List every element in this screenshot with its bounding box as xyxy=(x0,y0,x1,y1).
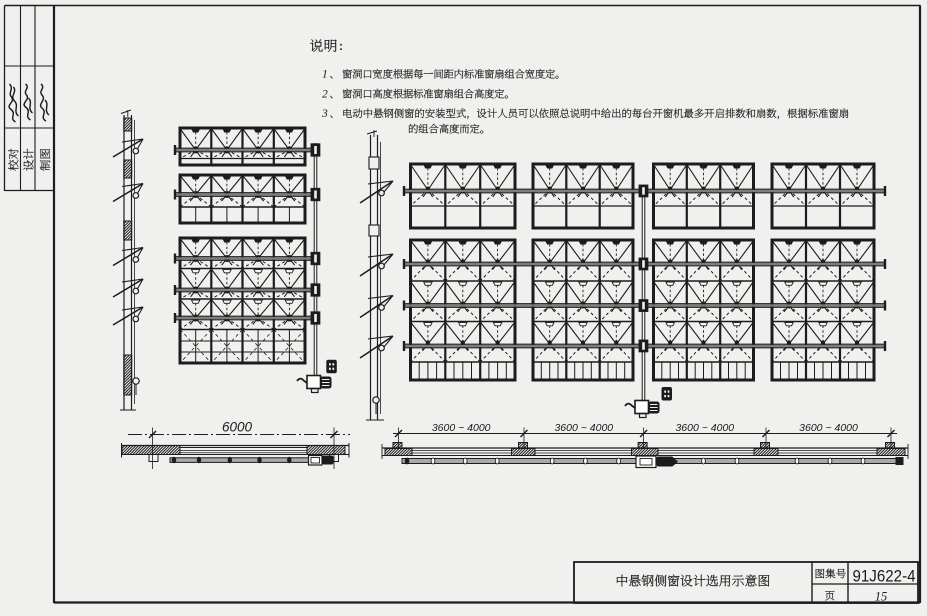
svg-text:3600 ~ 4000: 3600 ~ 4000 xyxy=(554,422,613,434)
svg-text:1: 1 xyxy=(322,69,328,81)
svg-text:91J622-4: 91J622-4 xyxy=(853,567,916,586)
svg-text:6000: 6000 xyxy=(222,420,253,435)
svg-text:3600 ~ 4000: 3600 ~ 4000 xyxy=(799,422,858,434)
svg-text::: : xyxy=(339,39,343,53)
svg-text:15: 15 xyxy=(875,590,888,604)
svg-text:2: 2 xyxy=(322,88,328,100)
svg-text:3600 ~ 4000: 3600 ~ 4000 xyxy=(432,422,491,434)
svg-text:3600 ~ 4000: 3600 ~ 4000 xyxy=(675,422,734,434)
svg-text:3: 3 xyxy=(321,108,328,120)
